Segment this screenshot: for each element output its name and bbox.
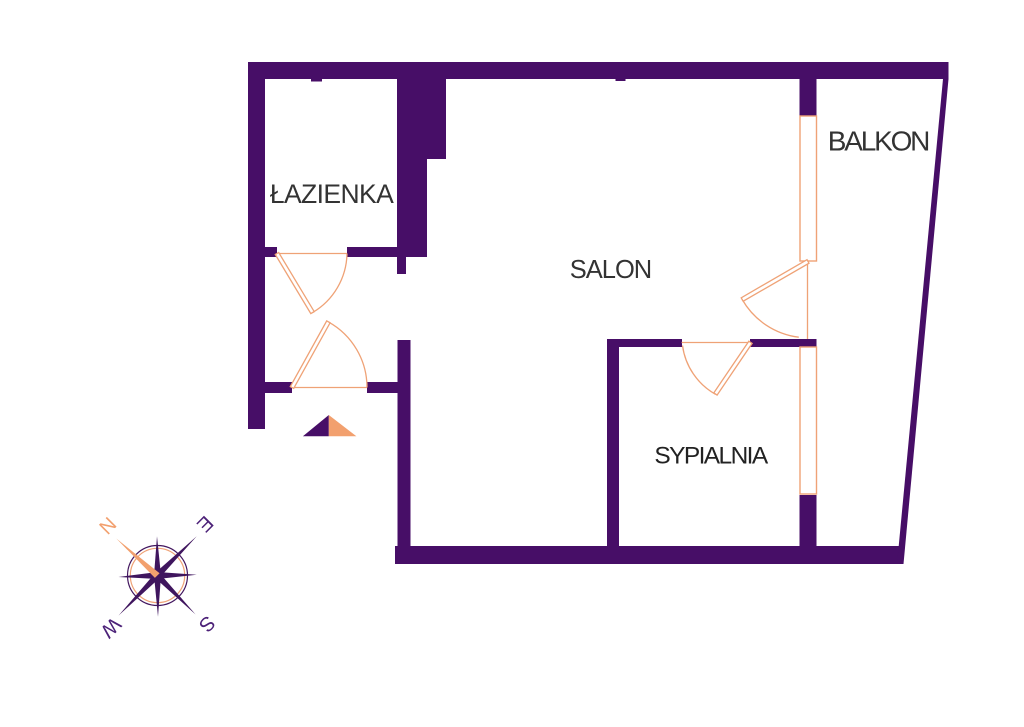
svg-text:BALKON: BALKON xyxy=(828,126,928,157)
svg-text:ŁAZIENKA: ŁAZIENKA xyxy=(270,179,394,209)
svg-text:SYPIALNIA: SYPIALNIA xyxy=(654,443,768,470)
svg-text:SALON: SALON xyxy=(570,256,651,284)
